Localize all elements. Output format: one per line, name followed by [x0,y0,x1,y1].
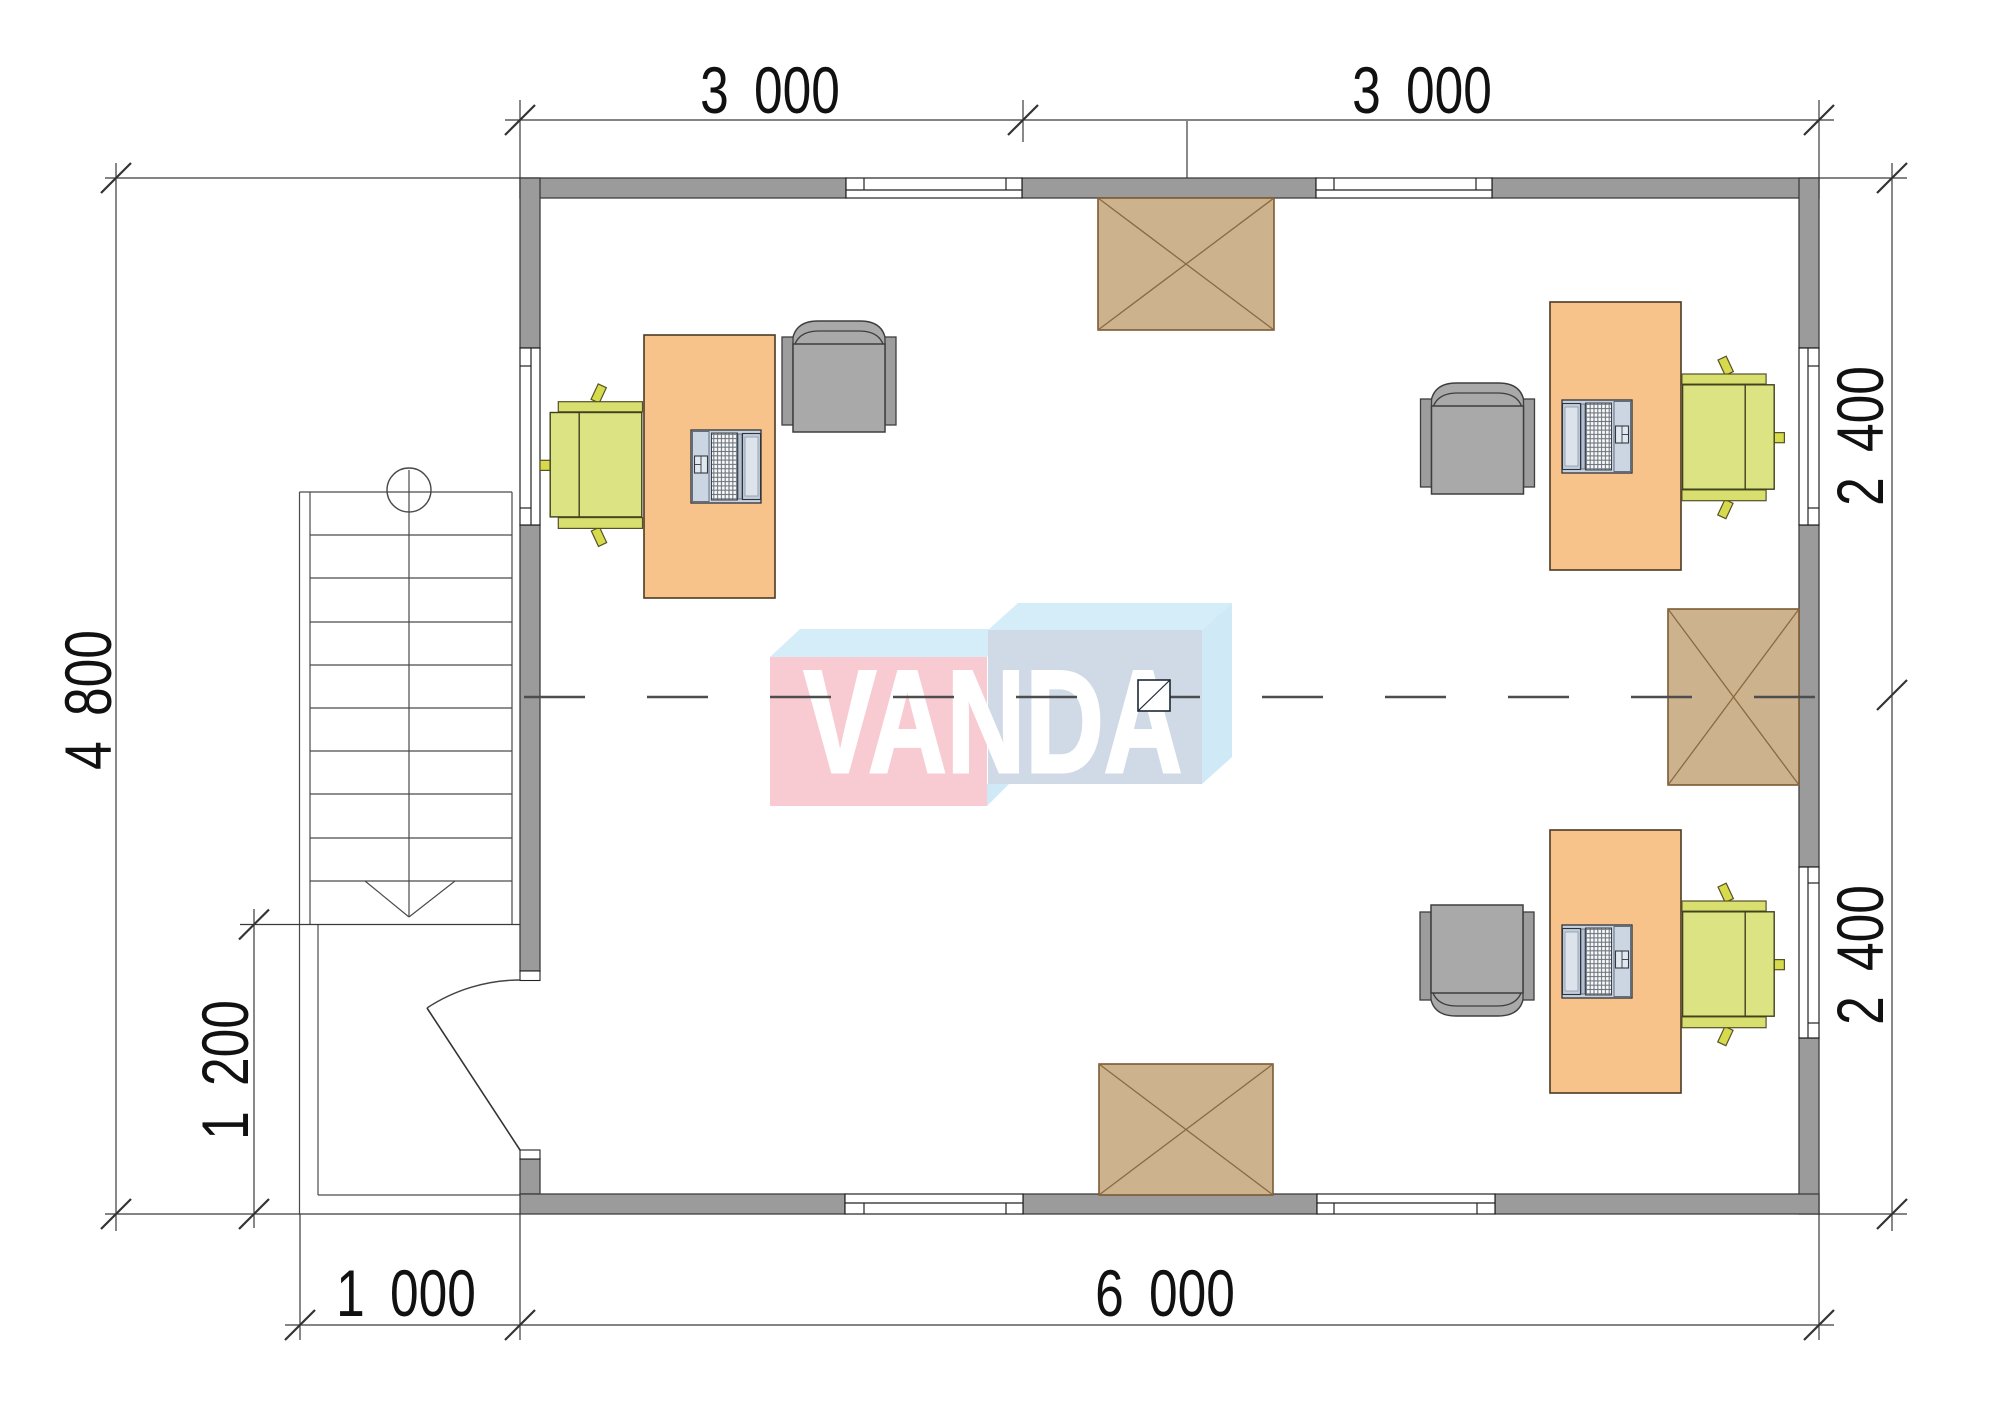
svg-text:1 000: 1 000 [336,1256,476,1331]
svg-text:1 200: 1 200 [188,1000,263,1140]
svg-text:2 400: 2 400 [1823,366,1898,506]
svg-text:2 400: 2 400 [1823,885,1898,1025]
svg-text:4 800: 4 800 [51,630,126,770]
svg-text:3 000: 3 000 [1352,53,1492,128]
svg-text:3 000: 3 000 [700,53,840,128]
svg-text:6 000: 6 000 [1095,1256,1235,1331]
